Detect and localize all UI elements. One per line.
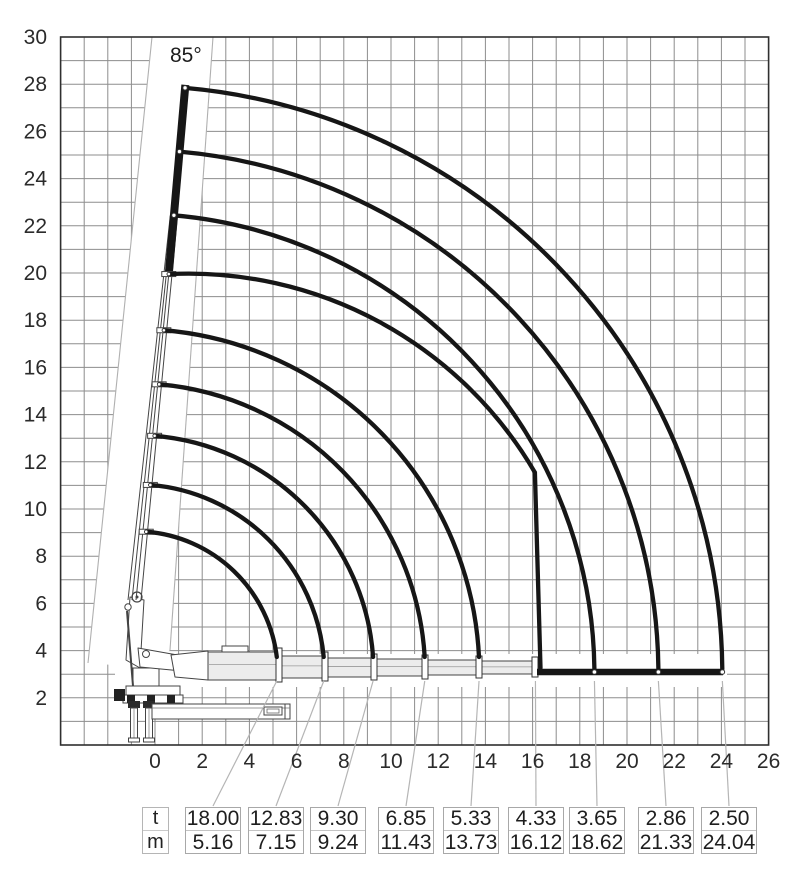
- axis-tick-label: 4: [244, 750, 256, 773]
- axis-tick-label: 24: [710, 750, 734, 773]
- load-arc: [169, 274, 541, 668]
- axis-tick-label: 8: [35, 545, 47, 568]
- capacity-arcs: [146, 88, 722, 669]
- axis-tick-label: 2: [35, 687, 47, 710]
- axis-tick-label: 2: [196, 750, 208, 773]
- axis-tick-label: 18: [568, 750, 591, 773]
- load-arc: [174, 215, 595, 669]
- crane-illustration: [114, 85, 723, 742]
- axis-tick-label: 14: [24, 404, 48, 427]
- load-arc: [185, 88, 722, 669]
- axis-tick-label: 10: [379, 750, 402, 773]
- leader-lines: [213, 681, 729, 806]
- axis-tick-label: 18: [24, 309, 47, 332]
- load-arc: [164, 330, 479, 657]
- axis-tick-label: 0: [149, 750, 161, 773]
- joint-dots: [145, 86, 725, 675]
- axis-tick-label: 4: [35, 640, 47, 663]
- axis-tick-label: 28: [24, 73, 47, 96]
- axis-tick-label: 12: [24, 451, 47, 474]
- axis-tick-label: 16: [24, 356, 47, 379]
- axis-tick-label: 12: [427, 750, 450, 773]
- load-arc: [159, 384, 425, 657]
- axis-tick-label: 6: [35, 592, 47, 615]
- axis-tick-label: 16: [521, 750, 544, 773]
- boom-angle-label: 85°: [170, 44, 202, 68]
- axis-tick-label: 24: [24, 168, 48, 191]
- y-axis-tick-labels: 30282624222018161412108642: [24, 26, 48, 710]
- axis-tick-label: 8: [338, 750, 350, 773]
- load-chart-canvas: 0246810121416182022242630282624222018161…: [0, 0, 800, 886]
- crane-load-diagram-page: 0246810121416182022242630282624222018161…: [0, 0, 800, 886]
- axis-tick-label: 10: [24, 498, 47, 521]
- axis-tick-label: 6: [291, 750, 303, 773]
- axis-tick-label: 22: [663, 750, 686, 773]
- axis-tick-label: 26: [757, 750, 780, 773]
- x-axis-tick-labels: 02468101214161820222426: [149, 750, 780, 773]
- axis-tick-label: 20: [615, 750, 638, 773]
- axis-tick-label: 22: [24, 215, 47, 238]
- axis-tick-label: 26: [24, 120, 47, 143]
- axis-tick-label: 14: [474, 750, 498, 773]
- axis-tick-label: 20: [24, 262, 47, 285]
- axis-tick-label: 30: [24, 26, 47, 49]
